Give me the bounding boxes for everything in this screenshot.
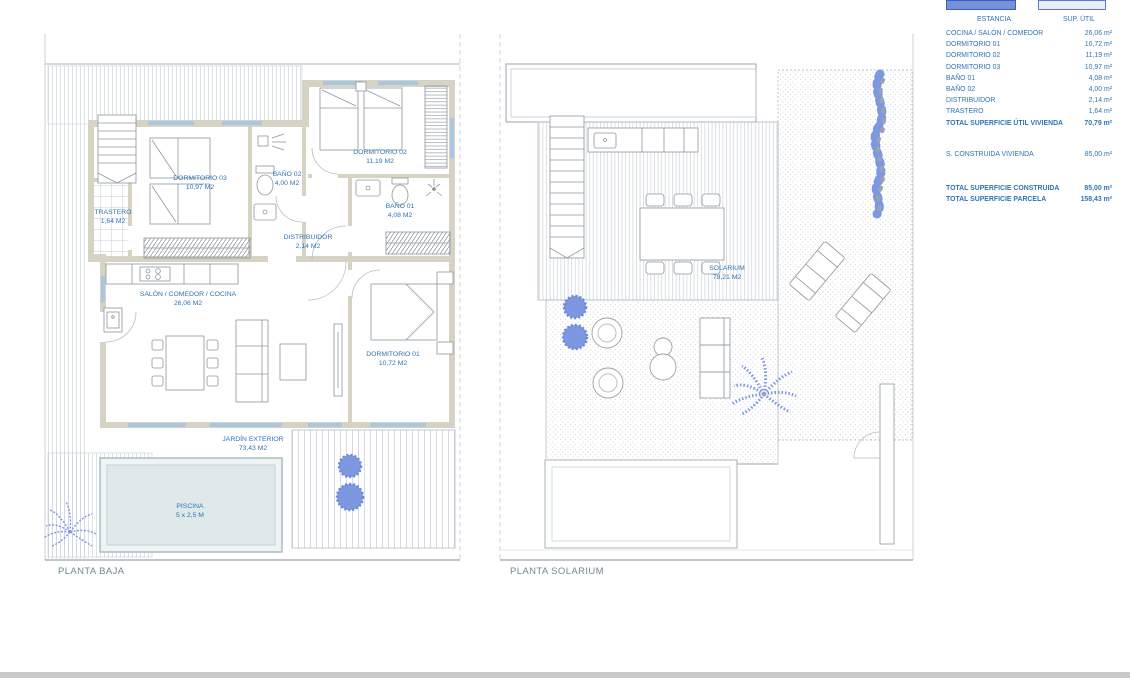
round-table <box>654 338 672 356</box>
wardrobe-dorm03 <box>144 238 250 258</box>
title-block-tab-solid <box>946 0 1016 10</box>
area-table-header: ESTANCIA SUP. ÚTIL <box>938 16 1118 23</box>
table-row-total-util: TOTAL SUPERFICIE ÚTIL VIVIENDA 70,79 m² <box>938 118 1118 129</box>
wardrobe-hall <box>386 232 450 254</box>
gravel-terrace-lower <box>546 300 778 464</box>
sofa <box>700 318 730 398</box>
planta-baja-drawing <box>40 26 470 586</box>
double-bed-dorm01 <box>371 272 453 354</box>
terrace-hatch <box>48 66 302 124</box>
floor-plan-planta-solarium: SOLARIUM78,21 M2 PLANTA SOLARIUM <box>492 26 922 586</box>
title-block-tab-light <box>1038 0 1106 10</box>
table-row: BAÑO 02 4,00 m² <box>938 84 1118 95</box>
table-row: BAÑO 01 4,08 m² <box>938 73 1118 84</box>
staircase <box>550 116 584 258</box>
outdoor-dining-table <box>640 194 724 274</box>
table-row: DORMITORIO 03 10,97 m² <box>938 62 1118 73</box>
sofa <box>236 320 268 402</box>
table-row-construida: S. CONSTRUIDA VIVIENDA 85,00 m² <box>938 149 1118 160</box>
table-row-total-parcela: TOTAL SUPERFICIE PARCELA 158,43 m² <box>938 194 1118 205</box>
planta-solarium-drawing <box>492 26 922 586</box>
kitchen-counter <box>106 264 238 284</box>
table-row: COCINA / SALÓN / COMEDOR 26,06 m² <box>938 28 1118 39</box>
drawing-sheet: TRASTERO1,64 M2 DORMITORIO 0310,97 M2 BA… <box>0 0 1130 678</box>
room-label-dormitorio-03: DORMITORIO 0310,97 M2 <box>173 175 227 193</box>
table-row: TRASTERO 1,64 m² <box>938 106 1118 117</box>
tree <box>339 455 361 477</box>
col-header-estancia: ESTANCIA <box>938 16 1050 23</box>
table-row: DISTRIBUIDOR 2,14 m² <box>938 95 1118 106</box>
outdoor-counter <box>588 128 698 152</box>
armchair <box>592 318 622 348</box>
closet-dorm02 <box>425 86 447 168</box>
room-label-jardin: JARDÍN EXTERIOR73,43 M2 <box>222 436 283 454</box>
room-label-distribuidor: DISTRIBUIDOR2,14 M2 <box>284 234 333 252</box>
col-header-sup-util: SUP. ÚTIL <box>1050 16 1108 23</box>
plan-title-planta-solarium: PLANTA SOLARIUM <box>510 566 604 577</box>
room-label-salon: SALÓN / COMEDOR / COCINA26,06 M2 <box>140 291 236 309</box>
deck-hatch <box>292 430 455 548</box>
tree <box>564 296 586 318</box>
staircase <box>98 115 136 183</box>
table-row: DORMITORIO 02 11,19 m² <box>938 50 1118 61</box>
room-label-piscina: PISCINA5 x 2,5 M <box>176 503 204 521</box>
coffee-table <box>280 344 306 380</box>
dining-table <box>152 336 218 390</box>
tree <box>563 325 587 349</box>
room-label-dormitorio-02: DORMITORIO 0211,19 M2 <box>353 149 407 167</box>
round-table <box>650 354 676 380</box>
armchair <box>593 368 623 398</box>
tv-unit <box>334 324 342 396</box>
table-row-total-construida: TOTAL SUPERFICIE CONSTRUIDA 85,00 m² <box>938 183 1118 194</box>
bathroom01-fixtures <box>356 178 442 205</box>
area-table: ESTANCIA SUP. ÚTIL COCINA / SALÓN / COME… <box>938 0 1118 205</box>
room-label-dormitorio-01: DORMITORIO 0110,72 M2 <box>366 351 420 369</box>
room-label-bano-01: BAÑO 014,08 M2 <box>386 203 415 221</box>
tree <box>337 484 363 510</box>
roof-outline <box>506 64 756 122</box>
floor-plan-planta-baja: TRASTERO1,64 M2 DORMITORIO 0310,97 M2 BA… <box>40 26 470 586</box>
room-label-solarium: SOLARIUM78,21 M2 <box>709 265 745 283</box>
sheet-bottom-edge <box>0 672 1130 678</box>
plan-title-planta-baja: PLANTA BAJA <box>58 566 125 577</box>
kitchen-sink <box>104 308 122 332</box>
room-label-trastero: TRASTERO1,64 M2 <box>94 209 131 227</box>
pool-outline-below <box>545 460 737 548</box>
room-label-bano-02: BAÑO 024,00 M2 <box>273 171 302 189</box>
table-row: DORMITORIO 01 10,72 m² <box>938 39 1118 50</box>
single-beds-dorm02 <box>320 82 402 150</box>
